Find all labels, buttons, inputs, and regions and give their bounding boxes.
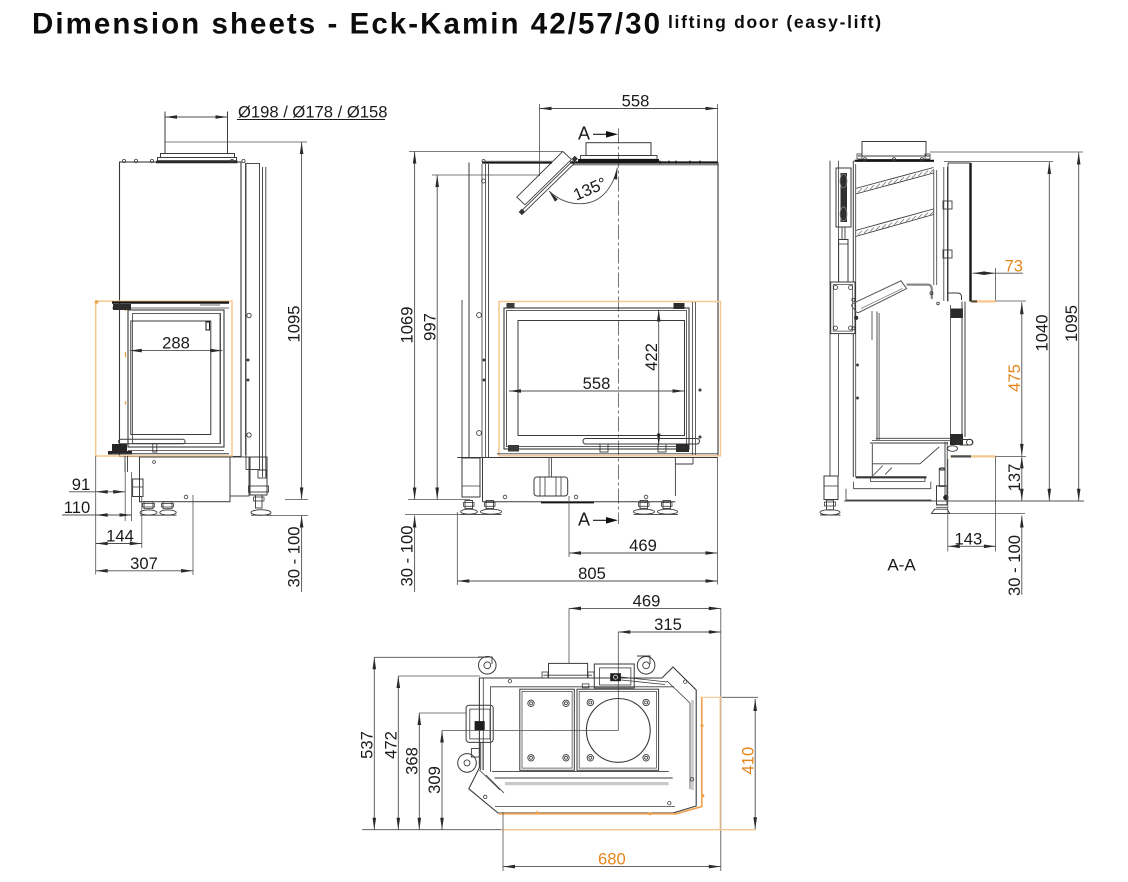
svg-text:143: 143 [955, 529, 983, 548]
svg-text:469: 469 [633, 592, 661, 611]
svg-text:30 - 100: 30 - 100 [285, 527, 304, 588]
svg-text:A-A: A-A [887, 556, 916, 575]
svg-text:30 - 100: 30 - 100 [1005, 535, 1024, 596]
svg-text:680: 680 [598, 850, 626, 869]
svg-text:Ø198 / Ø178 / Ø158: Ø198 / Ø178 / Ø158 [238, 102, 387, 121]
svg-text:307: 307 [130, 554, 158, 573]
svg-text:lifting door (easy-lift): lifting door (easy-lift) [668, 12, 883, 32]
svg-text:A: A [578, 510, 590, 530]
svg-text:288: 288 [162, 334, 190, 353]
svg-text:1095: 1095 [1062, 305, 1081, 342]
svg-text:469: 469 [629, 536, 657, 555]
svg-text:558: 558 [622, 92, 650, 111]
svg-text:309: 309 [425, 766, 444, 794]
svg-text:537: 537 [357, 731, 376, 759]
svg-text:73: 73 [1005, 256, 1023, 275]
svg-text:1069: 1069 [398, 307, 417, 344]
svg-text:91: 91 [72, 475, 90, 494]
svg-text:1095: 1095 [285, 306, 304, 343]
svg-text:110: 110 [64, 498, 90, 517]
svg-text:315: 315 [654, 615, 682, 634]
svg-text:Dimension sheets - Eck-Kamin 4: Dimension sheets - Eck-Kamin 42/57/30 [32, 8, 662, 41]
svg-text:30 - 100: 30 - 100 [398, 526, 417, 587]
svg-text:997: 997 [420, 313, 439, 341]
svg-text:368: 368 [402, 747, 421, 775]
svg-text:805: 805 [578, 564, 606, 583]
svg-text:A: A [578, 124, 590, 144]
svg-text:558: 558 [583, 374, 611, 393]
svg-text:475: 475 [1005, 364, 1024, 392]
svg-text:1040: 1040 [1032, 315, 1051, 352]
svg-text:144: 144 [106, 527, 134, 546]
svg-text:410: 410 [738, 747, 757, 775]
svg-text:472: 472 [381, 731, 400, 759]
svg-text:422: 422 [642, 343, 661, 371]
svg-text:137: 137 [1005, 464, 1024, 492]
